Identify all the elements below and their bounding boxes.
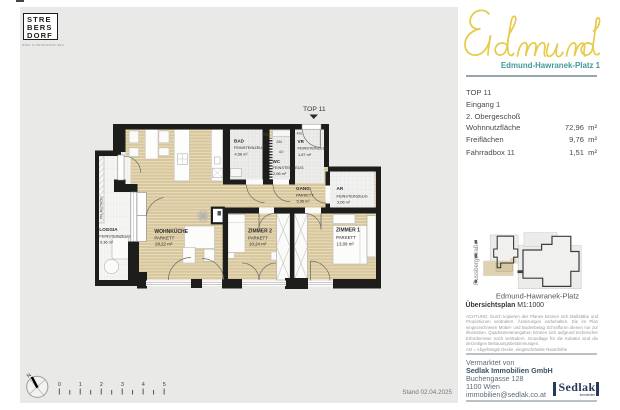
svg-text:PARKETT: PARKETT [248,236,268,241]
svg-text:FEINSTEINZEUG: FEINSTEINZEUG [234,145,265,150]
svg-text:5,96 m²: 5,96 m² [297,199,311,204]
svg-text:ZIMMER 1: ZIMMER 1 [336,228,360,234]
svg-text:10,24 m²: 10,24 m² [249,242,267,247]
svg-text:FEINSTEINZEUG: FEINSTEINZEUG [99,234,130,239]
svg-text:BAD: BAD [234,139,245,144]
svg-text:PARKETT: PARKETT [336,235,356,240]
svg-text:AR: AR [337,186,344,191]
svg-text:VR: VR [298,139,305,144]
svg-text:FEINSTEINZEUG: FEINSTEINZEUG [298,145,329,150]
svg-text:2,06 m²: 2,06 m² [273,171,287,176]
svg-text:LOGGIA: LOGGIA [99,227,118,232]
svg-text:9,36 m²: 9,36 m² [100,240,114,245]
svg-text:4: 4 [142,382,146,388]
svg-text:13,09 m²: 13,09 m² [337,242,355,247]
svg-text:4,56 m²: 4,56 m² [235,152,249,157]
svg-text:ABL: ABL [263,133,269,137]
svg-text:AD: AD [279,150,284,154]
svg-text:WC: WC [273,159,281,164]
svg-text:PARKETT: PARKETT [296,193,314,198]
svg-text:FEINSTEINZEUG: FEINSTEINZEUG [273,165,304,170]
svg-text:3,06 m²: 3,06 m² [337,200,351,205]
svg-text:28,22 m²: 28,22 m² [155,242,173,247]
svg-text:2: 2 [100,382,103,388]
svg-text:FEINSTEINZEUG: FEINSTEINZEUG [337,194,368,199]
svg-text:3: 3 [121,382,124,388]
svg-text:PARKETT: PARKETT [154,236,174,241]
svg-text:1,67 m²: 1,67 m² [298,152,312,157]
svg-text:Edmund-Hawranek-Platz: Edmund-Hawranek-Platz [496,292,580,301]
svg-text:ABL: ABL [277,140,283,144]
svg-text:WOHNKÜCHE: WOHNKÜCHE [154,228,188,235]
svg-text:TOP 11: TOP 11 [303,106,326,113]
svg-text:PFLANZTROG: PFLANZTROG [100,196,104,219]
svg-text:ZIMMER 2: ZIMMER 2 [248,229,272,235]
svg-text:Russbergstraße: Russbergstraße [473,240,480,285]
svg-text:5: 5 [163,382,166,388]
svg-text:1: 1 [79,382,82,388]
svg-text:ASL: ASL [297,132,303,136]
svg-text:GANG: GANG [296,186,310,191]
svg-text:0: 0 [58,382,61,388]
